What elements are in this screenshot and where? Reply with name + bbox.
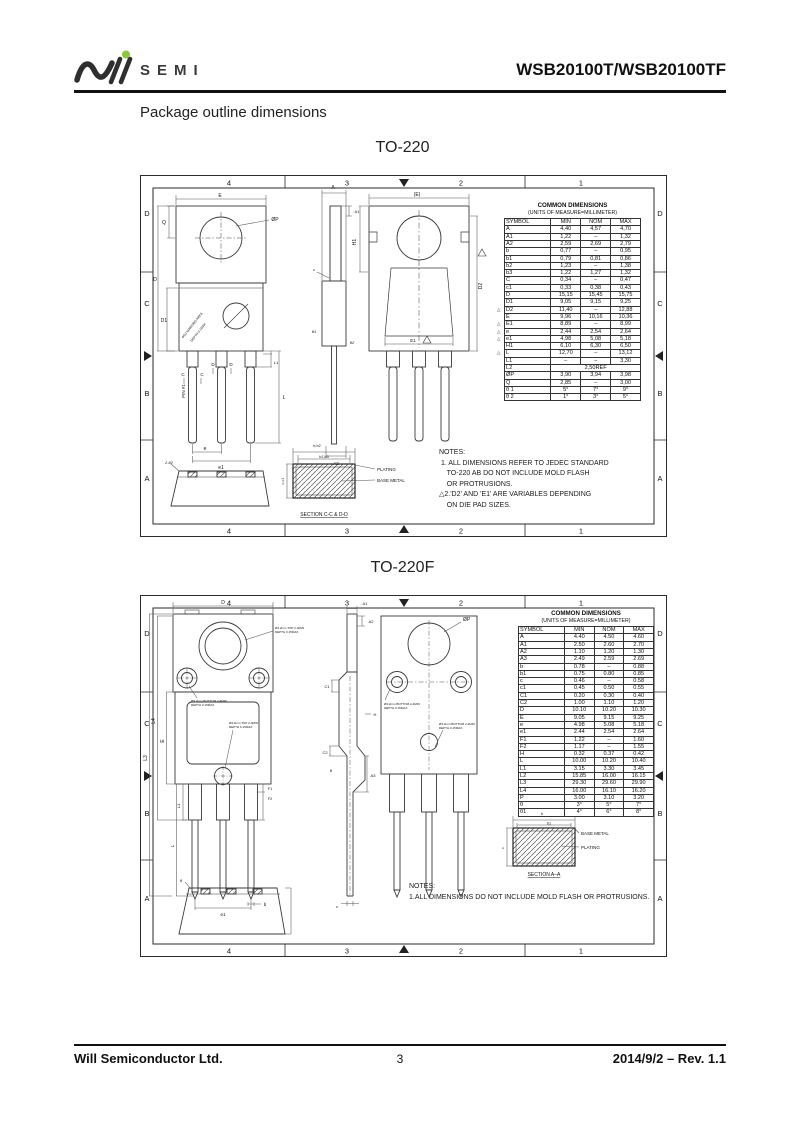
dim-row: e2,442,542,64	[505, 328, 641, 335]
logo-wordmark: SEMI	[140, 62, 205, 79]
dim-value: 3,90	[551, 372, 581, 379]
column-header: NOM	[581, 219, 611, 226]
page-title: Package outline dimensions	[140, 104, 327, 121]
dim-value: 0.50	[594, 685, 624, 692]
dim-symbol: E1	[505, 321, 551, 328]
dim-row: C21.001.101.20	[519, 700, 654, 707]
dim-value: 29.60	[594, 780, 624, 787]
dim-row: c10,330,380,43	[505, 284, 641, 291]
dim-value: 1.55	[624, 743, 654, 750]
dimensions-table: SYMBOLMINNOMMAXA4,404,574,70A11,22–1,32A…	[504, 218, 641, 401]
dim-value: 4,40	[551, 226, 581, 233]
column-header: SYMBOL	[519, 627, 565, 634]
to220-notes: NOTES: 1. ALL DIMENSIONS REFER TO JEDEC …	[439, 448, 609, 511]
dim-symbol: A1	[505, 233, 551, 240]
dim-value: 0.40	[624, 692, 654, 699]
dim-value: 2.60	[594, 641, 624, 648]
base-metal-label: BASE METAL	[581, 831, 609, 836]
hole-annotation: DEPTH 0.15MAX	[191, 703, 214, 707]
hole-annotation: DEPTH 0.15MAX	[275, 630, 298, 634]
dim-row: θ14°6°8°	[519, 809, 654, 816]
zone-label: D	[144, 209, 150, 218]
dim-value: 6,10	[551, 343, 581, 350]
dim-value: 9,15	[581, 299, 611, 306]
dim-symbol: A2	[519, 648, 565, 655]
dim-value: 3.30	[594, 765, 624, 772]
zone-label: B	[657, 809, 662, 818]
dim-value: 1,22	[551, 233, 581, 240]
dim-value: 3°	[564, 802, 594, 809]
dim-label-c: c	[336, 904, 338, 909]
dim-label-L: L	[170, 844, 175, 847]
dim-value: 9,05	[551, 299, 581, 306]
package-body	[175, 692, 271, 784]
dim-symbol: L3	[519, 780, 565, 787]
dim-value: 2.49	[564, 656, 594, 663]
dim-row: D211,40–12,88	[505, 306, 641, 313]
dim-row: F21.17–1.55	[519, 743, 654, 750]
dim-row: b10,790,810,86	[505, 255, 641, 262]
dim-value: 0.88	[624, 663, 654, 670]
dim-value: 1.10	[594, 700, 624, 707]
dim-symbol: L4	[519, 787, 565, 794]
dim-symbol: b	[505, 248, 551, 255]
zone-label: 4	[227, 179, 231, 188]
dim-value: 16.20	[624, 787, 654, 794]
section-dim-bb2: b,b2	[313, 444, 320, 448]
dim-value: –	[581, 306, 611, 313]
dim-row: A12.502.602.70	[519, 641, 654, 648]
dim-label-E1: E1	[410, 338, 416, 343]
dim-value: 2.69	[624, 656, 654, 663]
note-line: 1.ALL DIMENSIONS DO NOT INCLUDE MOLD FLA…	[409, 893, 649, 904]
dim-value: 10.20	[594, 707, 624, 714]
dim-row: E9,9610,1610,36	[505, 313, 641, 320]
table-title: COMMON DIMENSIONS	[504, 202, 641, 210]
dim-value: 0,33	[551, 284, 581, 291]
dim-value: 15,15	[551, 292, 581, 299]
dim-value: –	[594, 663, 624, 670]
dim-value: –	[581, 357, 611, 364]
dim-value: 0,38	[581, 284, 611, 291]
zone-label: 2	[459, 947, 463, 956]
dim-row: D10.1010.2010.30	[519, 707, 654, 714]
dim-value: 9.15	[594, 714, 624, 721]
zone-label: 1	[579, 179, 583, 188]
zone-label: 1	[579, 527, 583, 536]
dim-value: 15,75	[611, 292, 641, 299]
dim-label-L4: L4	[151, 718, 157, 724]
dim-label-A1: A1	[355, 209, 361, 214]
dim-value: 0.58	[624, 678, 654, 685]
dim-label-A3: A3	[371, 773, 377, 778]
dim-value: 29.30	[564, 780, 594, 787]
dim-label-b: b	[264, 902, 267, 907]
dim-row: θ 15°7°9°	[505, 386, 641, 393]
plating-label: PLATING	[377, 467, 396, 472]
dim-row: θ3°5°7°	[519, 802, 654, 809]
dim-symbol: H	[519, 751, 565, 758]
dim-row: c0.46–0.58	[519, 678, 654, 685]
dim-value: 5.18	[624, 721, 654, 728]
dim-label-L3: L3	[143, 755, 149, 761]
dim-row: Q2,85–3,00	[505, 379, 641, 386]
dim-value: 1,27	[581, 270, 611, 277]
dim-value: 9,25	[611, 299, 641, 306]
logo-slash-2	[121, 59, 130, 82]
zone-label: 3	[345, 527, 349, 536]
dim-label-F1: F1	[268, 787, 272, 791]
zone-label: C	[657, 719, 663, 728]
dim-symbol: C1	[519, 692, 565, 699]
zone-label: 1	[579, 947, 583, 956]
note-line: 1. ALL DIMENSIONS REFER TO JEDEC STANDAR…	[439, 459, 609, 470]
dim-value: 7°	[581, 386, 611, 393]
dim-symbol: e	[519, 721, 565, 728]
dim-value: –	[581, 350, 611, 357]
note-line: ON DIE PAD SIZES.	[439, 501, 609, 512]
dim-value: 4.50	[594, 634, 624, 641]
zone-label: 2	[459, 599, 463, 608]
dim-row: P3.003.103.20	[519, 794, 654, 801]
dim-label-L1: L1	[176, 803, 181, 808]
dim-value: 3.10	[594, 794, 624, 801]
hole-annotation: DEPTH 0.15MAX	[384, 706, 407, 710]
dim-row: H16,106,306,50	[505, 343, 641, 350]
dim-label-C1: C1	[324, 684, 330, 689]
dim-value: 2,79	[611, 240, 641, 247]
dim-value: 2.70	[624, 641, 654, 648]
to220f-notes: NOTES:1.ALL DIMENSIONS DO NOT INCLUDE MO…	[409, 882, 649, 903]
dim-label-theta: θ	[330, 768, 333, 773]
dim-symbol: c1	[505, 284, 551, 291]
dim-value: 10,16	[581, 313, 611, 320]
dim-value: 0.78	[564, 663, 594, 670]
note-line: NOTES:	[439, 448, 609, 459]
dim-symbol: D2	[505, 306, 551, 313]
dim-value: 1.17	[564, 743, 594, 750]
note-line: NOTES:	[409, 882, 649, 893]
dim-row: A21.101.201.30	[519, 648, 654, 655]
dim-label-E: E	[218, 193, 222, 199]
zone-label: 1	[579, 599, 583, 608]
dim-row: D15,1515,4515,75	[505, 292, 641, 299]
zone-label: A	[144, 474, 149, 483]
dim-row: θ 21°3°5°	[505, 394, 641, 401]
dim-row: L22,50REF	[505, 365, 641, 372]
hole-annotation: DEPTH 0.15MAX	[439, 726, 462, 730]
dim-row: L1––3,30	[505, 357, 641, 364]
dim-symbol: ØP	[505, 372, 551, 379]
dim-value: 13,12	[611, 350, 641, 357]
dim-label-D2: D2	[478, 283, 484, 290]
dim-label-E: E	[160, 739, 166, 743]
to220f-side-view	[339, 614, 365, 896]
column-header: MIN	[551, 219, 581, 226]
to220f-dimensions-table-slot: SYMBOLMINNOMMAXA4.404.504.60A12.502.602.…	[518, 626, 654, 817]
table-header-row: SYMBOLMINNOMMAX	[519, 627, 654, 634]
dim-label-E-back: (E)	[414, 192, 421, 198]
dim-row: c10.450.500.55	[519, 685, 654, 692]
dim-value: 3.15	[564, 765, 594, 772]
dim-value: 4,57	[581, 226, 611, 233]
dim-symbol: c1	[519, 685, 565, 692]
dim-value: 0,95	[611, 248, 641, 255]
dim-symbol: L2	[505, 365, 551, 372]
dim-symbol: F2	[519, 743, 565, 750]
part-number: WSB20100T/WSB20100TF	[400, 60, 726, 80]
dim-symbol: b1	[519, 670, 565, 677]
dim-value: 0.80	[594, 670, 624, 677]
pin1-label: PIN #1	[181, 384, 186, 398]
dim-symbol: H1	[505, 343, 551, 350]
dim-row: A11,22–1,32	[505, 233, 641, 240]
dim-row: A4,404,574,70	[505, 226, 641, 233]
dim-value: 2,50REF	[551, 365, 641, 372]
dim-value: 3,00	[611, 379, 641, 386]
dim-value: 0.55	[624, 685, 654, 692]
dim-label-D: D	[221, 600, 225, 606]
zone-label: B	[144, 809, 149, 818]
plating-label: PLATING	[581, 845, 600, 850]
dim-row: ØP3,903,943,98	[505, 372, 641, 379]
dim-symbol: L	[505, 350, 551, 357]
dim-symbol: D	[505, 292, 551, 299]
dim-value: –	[594, 736, 624, 743]
leads	[390, 774, 469, 897]
dim-label-Q: Q	[162, 220, 166, 226]
dim-value: 16.15	[624, 773, 654, 780]
dim-value: 16.00	[594, 773, 624, 780]
dim-value: –	[581, 379, 611, 386]
dim-symbol: A2	[505, 240, 551, 247]
base-metal-label: BASE METAL	[377, 478, 405, 483]
dim-label-e: e	[204, 446, 207, 452]
dim-value: 5,18	[611, 335, 641, 342]
dim-row: C0,34–0,47	[505, 277, 641, 284]
footer-rule	[74, 1044, 726, 1046]
section-dim-b1b3: b1,b3	[319, 455, 329, 459]
dim-label-phiP: ØP	[463, 617, 471, 623]
dim-symbol: b1	[505, 255, 551, 262]
to220f-drawing-sheet: 4 3 2 1 4 3 2 1 D C B A D C B A	[140, 595, 667, 957]
dim-symbol: A1	[519, 641, 565, 648]
dim-value: –	[581, 248, 611, 255]
dim-value: 0,34	[551, 277, 581, 284]
dim-label-A1: A1	[363, 601, 369, 606]
dim-value: 1.60	[624, 736, 654, 743]
column-header: MAX	[624, 627, 654, 634]
table-subtitle: (UNITS OF MEASURE=MILLIMETER)	[518, 618, 654, 625]
dim-value: 10.10	[564, 707, 594, 714]
dim-value: 4°	[564, 809, 594, 816]
leads	[387, 351, 452, 441]
hole-annotation: DEPTH 0.15MAX	[229, 725, 252, 729]
dim-row: C10.200.300.40	[519, 692, 654, 699]
dim-label-e1: e1	[218, 465, 224, 471]
dim-value: 10,36	[611, 313, 641, 320]
dim-value: 2.64	[624, 729, 654, 736]
dim-value: 3,98	[611, 372, 641, 379]
dim-value: 2,59	[551, 240, 581, 247]
leads	[187, 351, 256, 443]
table-subtitle: (UNITS OF MEASURE=MILLIMETER)	[504, 210, 641, 217]
dim-row: e12.442.542.64	[519, 729, 654, 736]
dim-value: 9.25	[624, 714, 654, 721]
dim-value: 15.85	[564, 773, 594, 780]
dim-value: 2,44	[551, 328, 581, 335]
dim-row: b21,23–1,38	[505, 262, 641, 269]
zone-label: A	[657, 894, 662, 903]
dim-symbol: C	[505, 277, 551, 284]
logo-wave	[77, 63, 112, 80]
dim-row: L329.3029.6029.90	[519, 780, 654, 787]
leads	[189, 784, 258, 899]
dim-value: 10.30	[624, 707, 654, 714]
to220-side-view	[322, 206, 346, 444]
dim-value: 4,70	[611, 226, 641, 233]
dim-row: b10.750.800.85	[519, 670, 654, 677]
dim-label-H1: H1	[352, 239, 358, 246]
dim-value: –	[581, 321, 611, 328]
zone-label: B	[657, 389, 662, 398]
section-caption: SECTION A–A	[528, 872, 561, 878]
dim-label-F2: F2	[268, 797, 272, 801]
bottom-view-note: 2-θ2	[164, 460, 174, 465]
dim-row: A32.492.592.69	[519, 656, 654, 663]
dim-value: 12,88	[611, 306, 641, 313]
dim-value: 0.85	[624, 670, 654, 677]
dim-value: 0.37	[594, 751, 624, 758]
zone-label: B	[144, 389, 149, 398]
dim-value: 3.20	[624, 794, 654, 801]
dim-row: L416.0016.1016.20	[519, 787, 654, 794]
dim-symbol: L	[519, 758, 565, 765]
dim-symbol: Q	[505, 379, 551, 386]
dim-value: 0,43	[611, 284, 641, 291]
note-line: OR PROTRUSIONS.	[439, 480, 609, 491]
dim-symbol: θ 1	[505, 386, 551, 393]
zone-label: C	[144, 299, 150, 308]
note-line: TO-220 AB DO NOT INCLUDE MOLD FLASH	[439, 469, 609, 480]
dim-symbol: b	[519, 663, 565, 670]
dim-value: 0,79	[551, 255, 581, 262]
zone-label: 4	[227, 947, 231, 956]
dim-symbol: b2	[505, 262, 551, 269]
dim-value: 3.00	[564, 794, 594, 801]
dim-value: 10.40	[624, 758, 654, 765]
dim-value: 4.98	[564, 721, 594, 728]
dim-value: 0.75	[564, 670, 594, 677]
dim-symbol: e1	[505, 335, 551, 342]
dim-value: 9.05	[564, 714, 594, 721]
dim-value: 6,30	[581, 343, 611, 350]
dim-symbol: e1	[519, 729, 565, 736]
dim-row: F11.22–1.60	[519, 736, 654, 743]
dim-value: 2.50	[564, 641, 594, 648]
dim-value: 5,08	[581, 335, 611, 342]
dim-label-L: L	[283, 395, 286, 401]
dim-label-e1: e1	[220, 912, 226, 917]
dim-symbol: D	[519, 707, 565, 714]
dim-symbol: L2	[519, 773, 565, 780]
dim-value: –	[594, 743, 624, 750]
dim-value: 3,30	[611, 357, 641, 364]
package-tab	[173, 614, 273, 692]
section-callout-C: C	[200, 372, 204, 377]
dimensions-table: SYMBOLMINNOMMAXA4.404.504.60A12.502.602.…	[518, 626, 654, 817]
dim-value: 7°	[624, 802, 654, 809]
dim-symbol: A	[519, 634, 565, 641]
datasheet-page: { "header": { "logo_text": "SEMI", "part…	[0, 0, 800, 1131]
dim-value: –	[551, 357, 581, 364]
dim-symbol: P	[519, 794, 565, 801]
mounting-hole	[199, 622, 247, 670]
to220f-section-detail: b b1 c BASE METAL PLATING SECTION A–A	[501, 812, 609, 878]
to220-drawing-sheet: 4 3 2 1 4 3 2 1 D C B A D C B A	[140, 175, 667, 537]
dim-value: 8°	[624, 809, 654, 816]
dim-row: A22,592,692,79	[505, 240, 641, 247]
dim-value: 4,98	[551, 335, 581, 342]
dim-value: 0.45	[564, 685, 594, 692]
section-callout-C: C	[181, 372, 185, 377]
dim-value: 16.10	[594, 787, 624, 794]
dim-symbol: A	[505, 226, 551, 233]
dim-label-A2: A2	[369, 619, 375, 624]
dim-value: 0.42	[624, 751, 654, 758]
dim-value: 1.10	[564, 648, 594, 655]
dim-label-D1: D1	[161, 318, 168, 324]
logo-green-dot	[122, 51, 130, 59]
dim-value: 2,64	[611, 328, 641, 335]
dim-value: 9°	[611, 386, 641, 393]
zone-label: A	[657, 474, 662, 483]
section-caption: SECTION C-C & D-D	[300, 512, 348, 518]
dim-symbol: e	[505, 328, 551, 335]
dim-symbol: θ 2	[505, 394, 551, 401]
dim-value: 9,96	[551, 313, 581, 320]
column-header: SYMBOL	[505, 219, 551, 226]
to220f-back-view	[381, 616, 477, 897]
dim-symbol: θ	[519, 802, 565, 809]
dim-value: 0,81	[581, 255, 611, 262]
dim-value: 0,86	[611, 255, 641, 262]
dim-row: E18,89–8,99	[505, 321, 641, 328]
to220f-heading: TO-220F	[140, 559, 665, 577]
to220-heading: TO-220	[140, 139, 665, 157]
dim-value: 1,23	[551, 262, 581, 269]
zone-label: D	[657, 209, 663, 218]
dim-value: 0.32	[564, 751, 594, 758]
zone-label: D	[657, 629, 663, 638]
dim-value: 16.00	[564, 787, 594, 794]
dim-symbol: c	[519, 678, 565, 685]
to220-section-detail: b,b2 b1,b3 c,c1 PLATING BASE METAL SECTI…	[281, 444, 405, 518]
dim-value: 2,85	[551, 379, 581, 386]
dim-value: 1.30	[624, 648, 654, 655]
dim-row: A4.404.504.60	[519, 634, 654, 641]
dim-value: 3°	[581, 394, 611, 401]
dim-symbol: b3	[505, 270, 551, 277]
dim-row: e4.985.085.18	[519, 721, 654, 728]
dim-value: 1.20	[594, 648, 624, 655]
dim-value: 2,69	[581, 240, 611, 247]
dim-label-C2: C2	[322, 750, 328, 755]
dim-symbol: D1	[505, 299, 551, 306]
dim-value: 1,32	[611, 270, 641, 277]
dim-row: b31,221,271,32	[505, 270, 641, 277]
dim-row: H0.320.370.42	[519, 751, 654, 758]
